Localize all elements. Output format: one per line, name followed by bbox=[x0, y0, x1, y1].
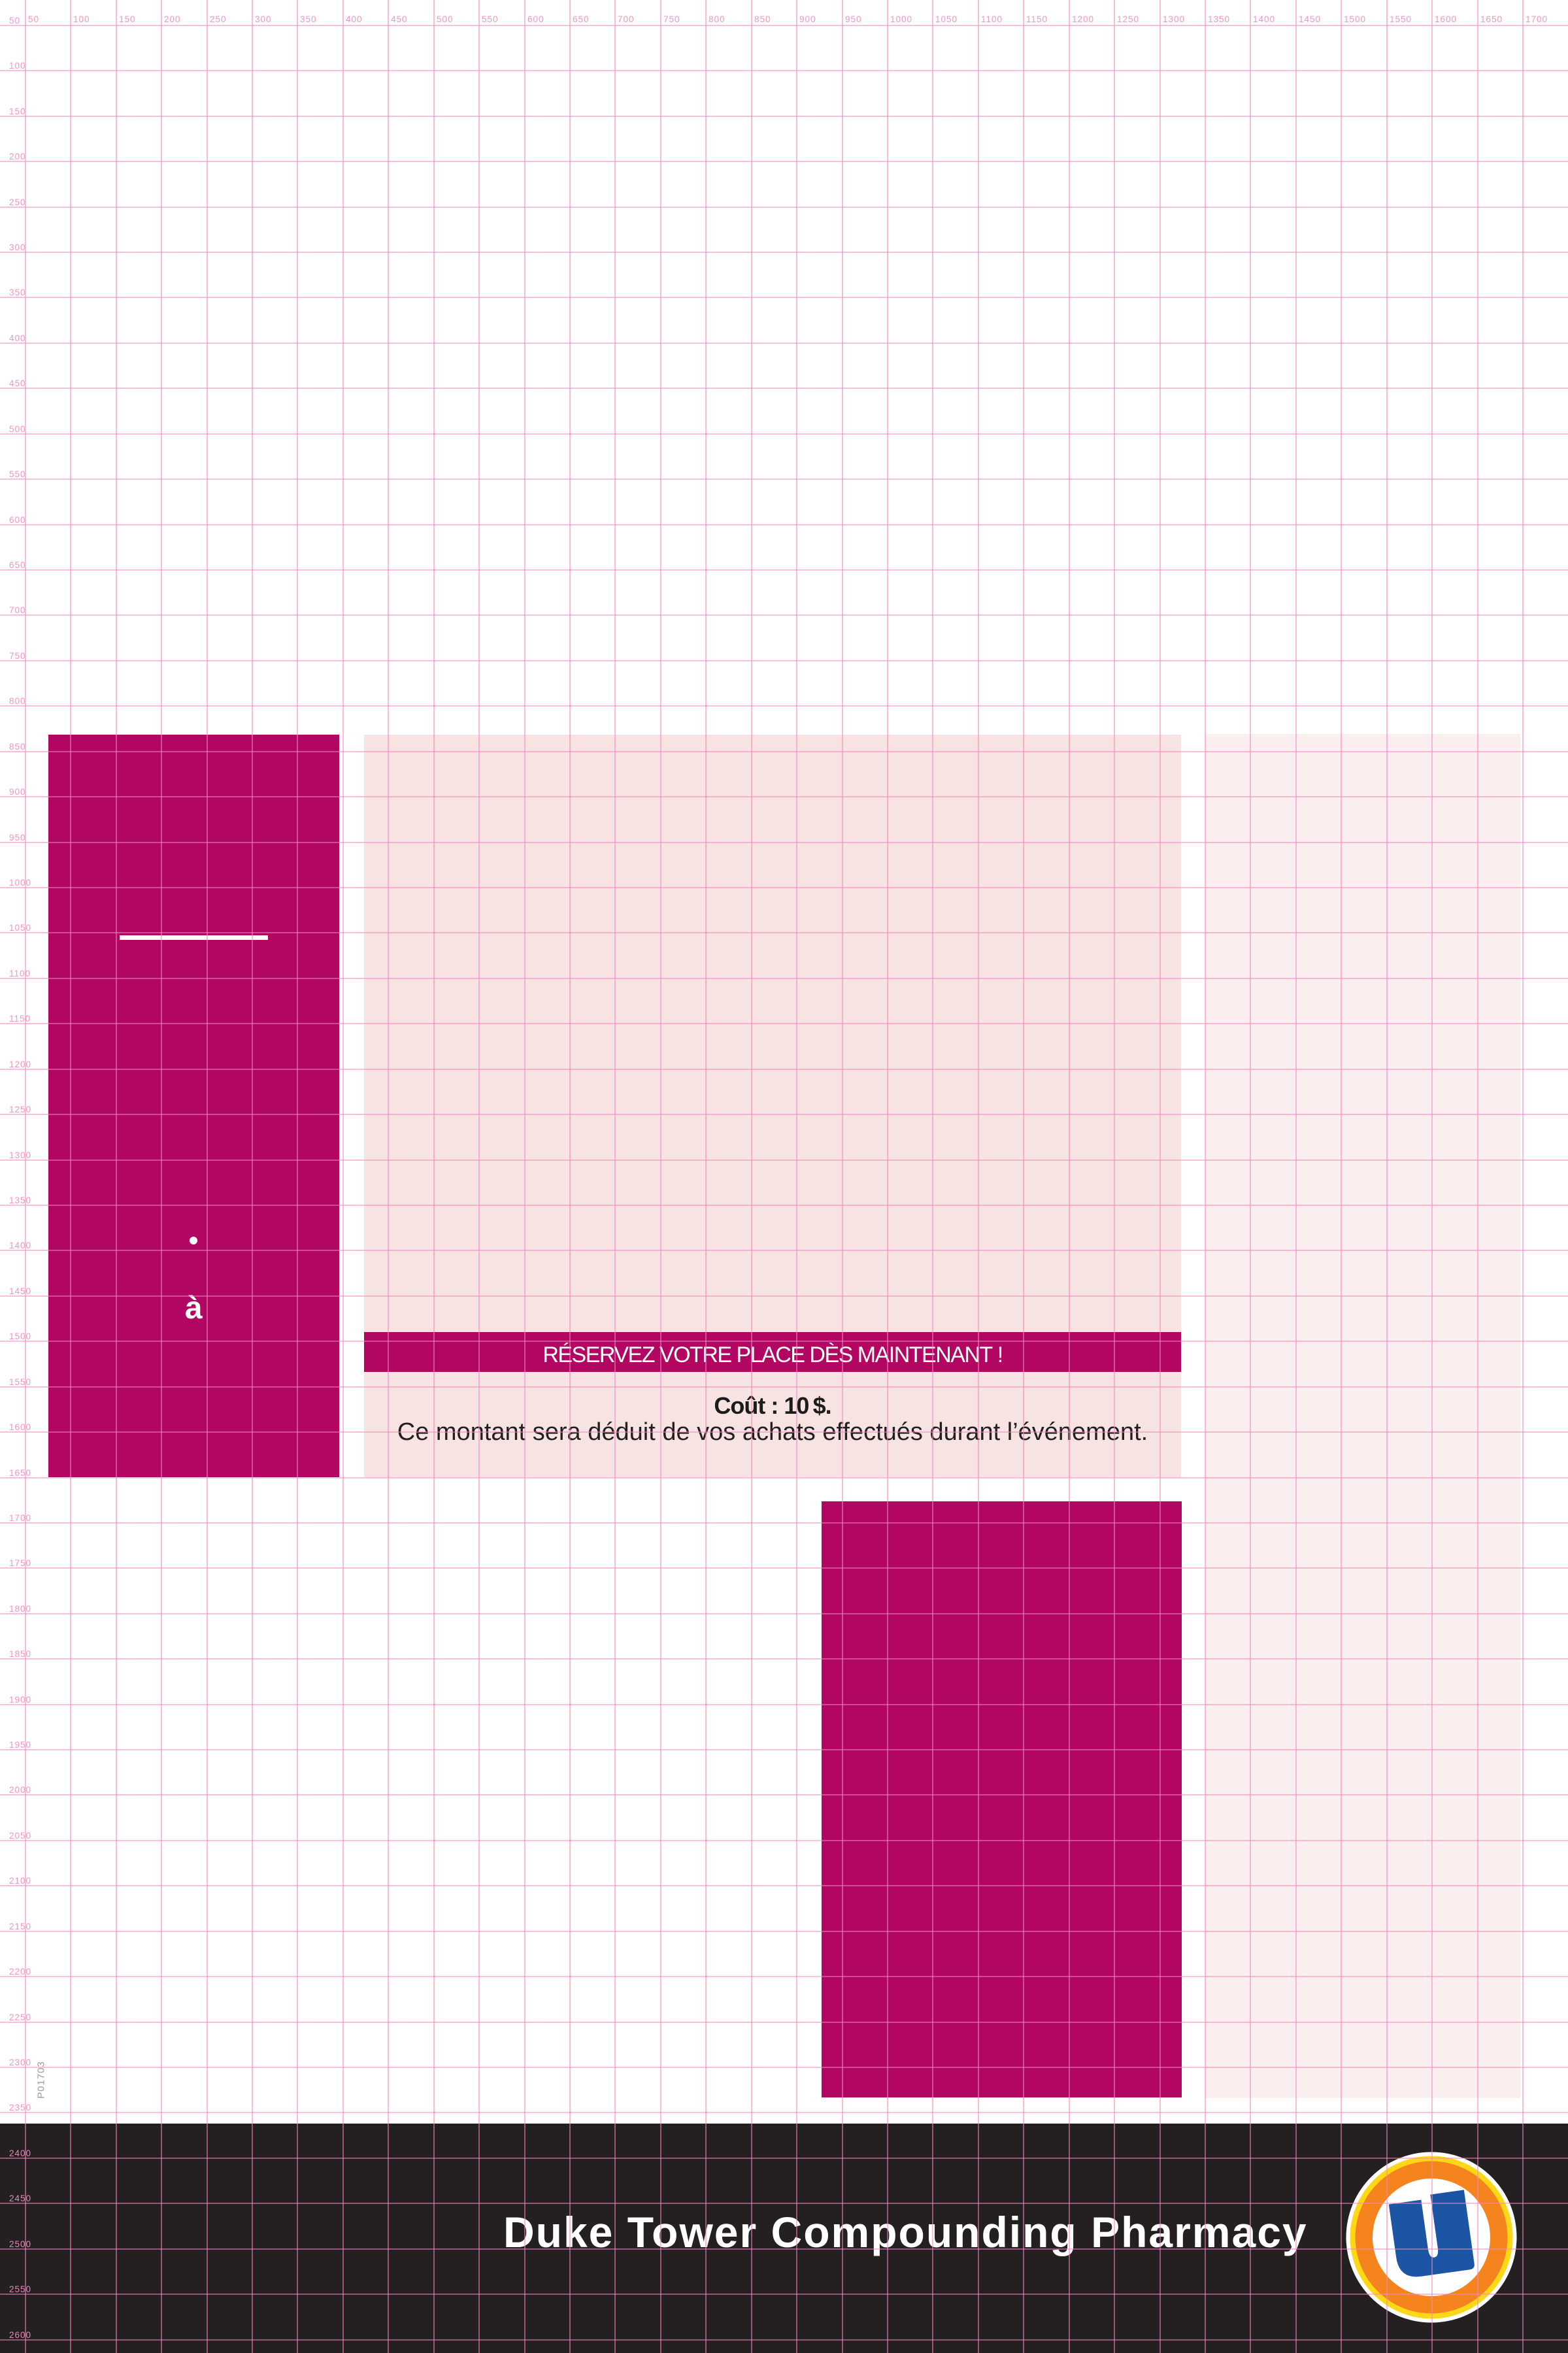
svg-text:850: 850 bbox=[754, 14, 771, 24]
svg-text:50: 50 bbox=[9, 16, 20, 25]
svg-text:1450: 1450 bbox=[1299, 14, 1321, 24]
svg-text:1100: 1100 bbox=[9, 969, 31, 978]
svg-text:1200: 1200 bbox=[9, 1060, 31, 1069]
svg-text:1800: 1800 bbox=[9, 1604, 31, 1614]
svg-text:150: 150 bbox=[9, 107, 26, 116]
svg-text:1750: 1750 bbox=[9, 1558, 31, 1568]
svg-text:900: 900 bbox=[9, 787, 26, 797]
svg-text:600: 600 bbox=[527, 14, 544, 24]
svg-text:1200: 1200 bbox=[1072, 14, 1094, 24]
svg-text:1350: 1350 bbox=[1208, 14, 1230, 24]
svg-text:1600: 1600 bbox=[1435, 14, 1457, 24]
svg-text:2250: 2250 bbox=[9, 2012, 31, 2022]
svg-text:1600: 1600 bbox=[9, 1422, 31, 1432]
svg-text:1900: 1900 bbox=[9, 1695, 31, 1705]
svg-text:400: 400 bbox=[9, 333, 26, 343]
svg-text:200: 200 bbox=[9, 152, 26, 161]
svg-text:1050: 1050 bbox=[935, 14, 958, 24]
svg-text:700: 700 bbox=[9, 605, 26, 615]
svg-text:2000: 2000 bbox=[9, 1785, 31, 1795]
svg-text:1500: 1500 bbox=[9, 1331, 31, 1341]
svg-text:100: 100 bbox=[9, 61, 26, 71]
svg-text:1300: 1300 bbox=[1163, 14, 1185, 24]
svg-text:750: 750 bbox=[9, 651, 26, 661]
svg-text:550: 550 bbox=[482, 14, 499, 24]
svg-text:550: 550 bbox=[9, 469, 26, 479]
svg-text:800: 800 bbox=[9, 696, 26, 706]
svg-text:1150: 1150 bbox=[9, 1014, 31, 1024]
svg-text:2050: 2050 bbox=[9, 1831, 31, 1841]
svg-text:1300: 1300 bbox=[9, 1150, 31, 1160]
svg-text:1450: 1450 bbox=[9, 1286, 31, 1296]
svg-text:1250: 1250 bbox=[9, 1105, 31, 1114]
svg-text:1700: 1700 bbox=[1526, 14, 1548, 24]
svg-text:650: 650 bbox=[9, 560, 26, 570]
svg-text:2150: 2150 bbox=[9, 1922, 31, 1931]
svg-text:100: 100 bbox=[73, 14, 90, 24]
svg-text:1950: 1950 bbox=[9, 1740, 31, 1750]
svg-text:1550: 1550 bbox=[1390, 14, 1412, 24]
svg-text:400: 400 bbox=[346, 14, 363, 24]
svg-text:1050: 1050 bbox=[9, 923, 31, 933]
svg-text:950: 950 bbox=[9, 833, 26, 843]
svg-text:1000: 1000 bbox=[9, 878, 31, 888]
svg-text:300: 300 bbox=[255, 14, 272, 24]
svg-text:650: 650 bbox=[573, 14, 590, 24]
svg-text:700: 700 bbox=[618, 14, 635, 24]
svg-text:1500: 1500 bbox=[1344, 14, 1366, 24]
svg-text:1250: 1250 bbox=[1117, 14, 1139, 24]
svg-text:1400: 1400 bbox=[9, 1241, 31, 1250]
svg-text:800: 800 bbox=[709, 14, 726, 24]
svg-text:600: 600 bbox=[9, 515, 26, 525]
svg-text:950: 950 bbox=[845, 14, 862, 24]
svg-text:750: 750 bbox=[663, 14, 680, 24]
svg-text:1650: 1650 bbox=[9, 1468, 31, 1478]
svg-text:1000: 1000 bbox=[890, 14, 912, 24]
svg-text:450: 450 bbox=[391, 14, 408, 24]
svg-text:2100: 2100 bbox=[9, 1876, 31, 1886]
svg-text:50: 50 bbox=[28, 14, 39, 24]
svg-text:500: 500 bbox=[9, 424, 26, 434]
svg-text:300: 300 bbox=[9, 242, 26, 252]
svg-text:1550: 1550 bbox=[9, 1377, 31, 1387]
svg-text:2300: 2300 bbox=[9, 2058, 31, 2067]
svg-text:1150: 1150 bbox=[1026, 14, 1048, 24]
svg-text:900: 900 bbox=[799, 14, 816, 24]
svg-text:1350: 1350 bbox=[9, 1195, 31, 1205]
svg-text:1700: 1700 bbox=[9, 1513, 31, 1523]
svg-text:2200: 2200 bbox=[9, 1967, 31, 1977]
svg-text:150: 150 bbox=[119, 14, 136, 24]
svg-text:350: 350 bbox=[9, 288, 26, 297]
svg-text:1850: 1850 bbox=[9, 1649, 31, 1659]
svg-text:450: 450 bbox=[9, 378, 26, 388]
svg-text:200: 200 bbox=[164, 14, 181, 24]
svg-text:1650: 1650 bbox=[1480, 14, 1503, 24]
svg-text:250: 250 bbox=[210, 14, 227, 24]
svg-text:850: 850 bbox=[9, 742, 26, 752]
svg-text:500: 500 bbox=[437, 14, 454, 24]
svg-text:350: 350 bbox=[300, 14, 317, 24]
svg-text:1100: 1100 bbox=[981, 14, 1003, 24]
svg-text:1400: 1400 bbox=[1253, 14, 1275, 24]
svg-text:250: 250 bbox=[9, 197, 26, 207]
svg-text:2350: 2350 bbox=[9, 2103, 31, 2112]
